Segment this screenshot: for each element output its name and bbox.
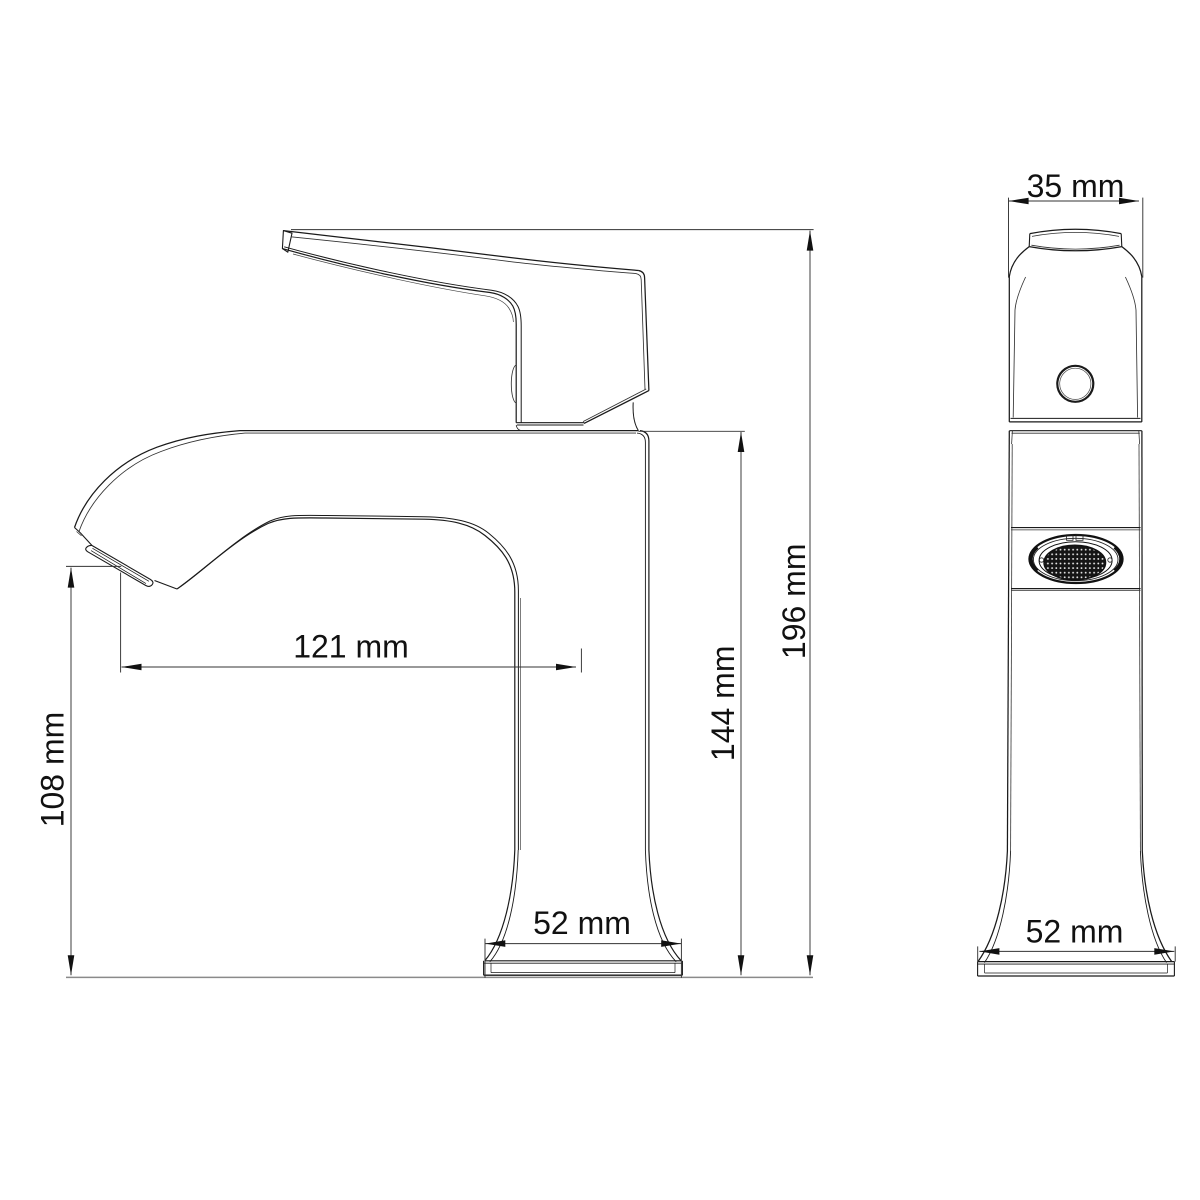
svg-text:196 mm: 196 mm <box>776 544 812 660</box>
svg-text:35 mm: 35 mm <box>1027 168 1125 204</box>
svg-text:108 mm: 108 mm <box>35 712 71 828</box>
svg-text:121 mm: 121 mm <box>293 629 409 665</box>
svg-text:144 mm: 144 mm <box>705 646 741 762</box>
svg-text:52 mm: 52 mm <box>1026 913 1124 949</box>
svg-text:52 mm: 52 mm <box>533 905 631 941</box>
